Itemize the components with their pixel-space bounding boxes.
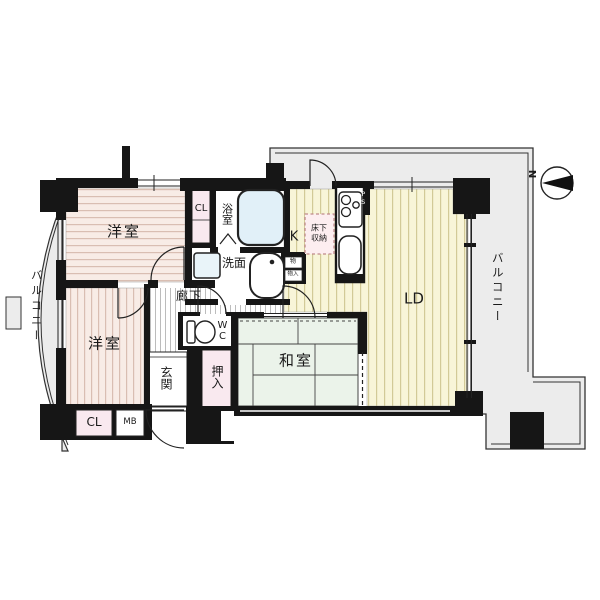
closet-top-label: CL [195, 204, 208, 214]
north-label: N [529, 170, 539, 178]
balcony-partition-notch [6, 297, 21, 329]
bedroom-top-label: 洋室 [107, 225, 141, 240]
japanese-room-label: 和室 [279, 354, 313, 369]
living-dining-label: LD [404, 292, 424, 307]
bathtub-icon [238, 190, 284, 245]
kitchen-label: K [290, 231, 299, 244]
storage-top-label: 物 [290, 259, 296, 265]
kitchen-sink-icon [339, 236, 361, 274]
floor-plan: 洋室 洋室 和室 LD K 浴室 洗面 WC 廊下 玄関 押入 CL CL MB… [0, 0, 600, 600]
meter-box-label: MB [123, 418, 136, 427]
toilet-icon [187, 321, 215, 343]
bath-folding-door-icon [220, 234, 236, 244]
bath-label: 浴室 [222, 203, 233, 225]
north-arrow-icon [541, 167, 573, 199]
closet-top-box [192, 190, 210, 243]
washroom-label: 洗面 [222, 257, 246, 269]
closet-bottom-label: CL [86, 416, 101, 428]
hallway-label: 廊下 [176, 290, 202, 302]
toilet-label: WC [217, 320, 227, 342]
oshiire-label: 押入 [211, 365, 223, 389]
underfloor-storage-label: 床下 収納 [311, 223, 327, 242]
vanity-sink-icon [250, 253, 284, 298]
bedroom-bottom-label: 洋室 [88, 337, 122, 352]
balcony-left-label: バルコニー [31, 270, 42, 345]
washing-machine-icon [194, 253, 220, 278]
entrance-label: 玄関 [160, 366, 172, 390]
storage-bottom-label: 物入 [287, 272, 298, 278]
balcony-right-label: バルコニー [491, 252, 503, 325]
entrance-porch-step [221, 411, 234, 441]
floor-plan-drawing [0, 0, 600, 600]
pipe-space-label: PS [360, 190, 367, 206]
stove-icon [339, 192, 362, 227]
